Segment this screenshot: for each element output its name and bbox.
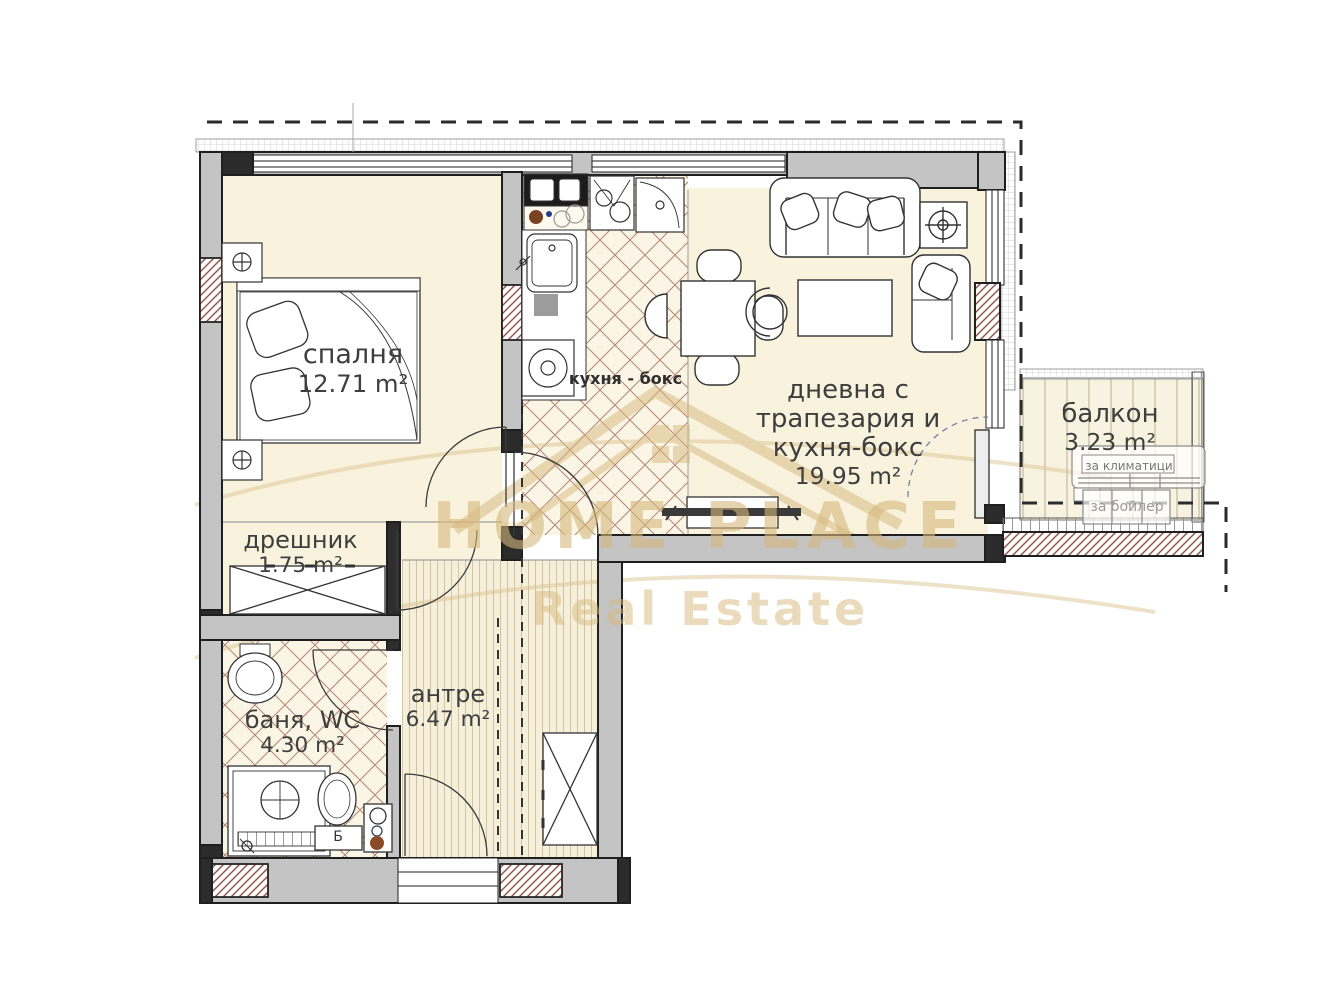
room-area: 6.47 m² — [398, 708, 498, 732]
floor-plan-canvas: HOME PLACE Real Estate спалня 12.71 m² д… — [0, 0, 1333, 1000]
kitchen-box-label: кухня - бокс — [558, 369, 693, 388]
room-area: 3.23 m² — [1035, 429, 1185, 455]
boiler-label: за бойлер — [1086, 499, 1168, 515]
room-name: кухня-бокс — [742, 434, 954, 463]
living-label: дневна с трапезария и кухня-бокс 19.95 m… — [742, 376, 954, 490]
shower-grate — [238, 832, 318, 846]
entrance-opening — [398, 858, 498, 903]
kitchen-sink — [527, 234, 577, 292]
bedroom-window — [253, 155, 572, 172]
decor-dot-blue — [546, 211, 552, 217]
balcony-label: балкон 3.23 m² — [1035, 400, 1185, 455]
bath-label: баня, WC 4.30 m² — [235, 707, 370, 758]
toilet-cistern-label: Б — [329, 829, 347, 845]
fridge — [636, 178, 684, 232]
room-name: дневна с — [742, 376, 954, 405]
bedroom-label: спалня 12.71 m² — [253, 340, 453, 397]
chair — [753, 296, 783, 340]
wall-hatch-segment — [200, 258, 222, 322]
hall-wardrobe — [543, 733, 597, 845]
room-name: баня, WC — [235, 707, 370, 734]
room-name: спалня — [253, 340, 453, 370]
watermark-tagline: Real Estate — [480, 582, 920, 636]
exterior-insulation-strip — [196, 139, 1004, 152]
room-name: балкон — [1035, 400, 1185, 429]
ac-label: за климатици — [1084, 459, 1174, 473]
closet-label: дрешник 1.75 m² — [233, 527, 368, 578]
living-window-lower — [986, 340, 1004, 428]
chair — [697, 250, 741, 282]
room-name: трапезария и — [742, 405, 954, 434]
under-balcony-wall-hatch — [1003, 532, 1203, 556]
living-window-upper — [986, 190, 1004, 285]
watermark-brand: HOME PLACE — [420, 490, 980, 564]
decor-dot-brown — [529, 210, 543, 224]
room-area: 4.30 m² — [235, 734, 370, 758]
room-name: дрешник — [233, 527, 368, 554]
dining-table — [681, 281, 755, 356]
window-pier-hatch — [975, 283, 1000, 340]
hall-label: антре 6.47 m² — [398, 681, 498, 732]
room-area: 12.71 m² — [253, 370, 453, 397]
kitchen-window — [592, 155, 785, 172]
room-area: 1.75 m² — [233, 554, 368, 578]
room-area: 19.95 m² — [742, 463, 954, 489]
chair — [695, 353, 739, 385]
coffee-table — [798, 280, 892, 336]
room-name: антре — [398, 681, 498, 708]
